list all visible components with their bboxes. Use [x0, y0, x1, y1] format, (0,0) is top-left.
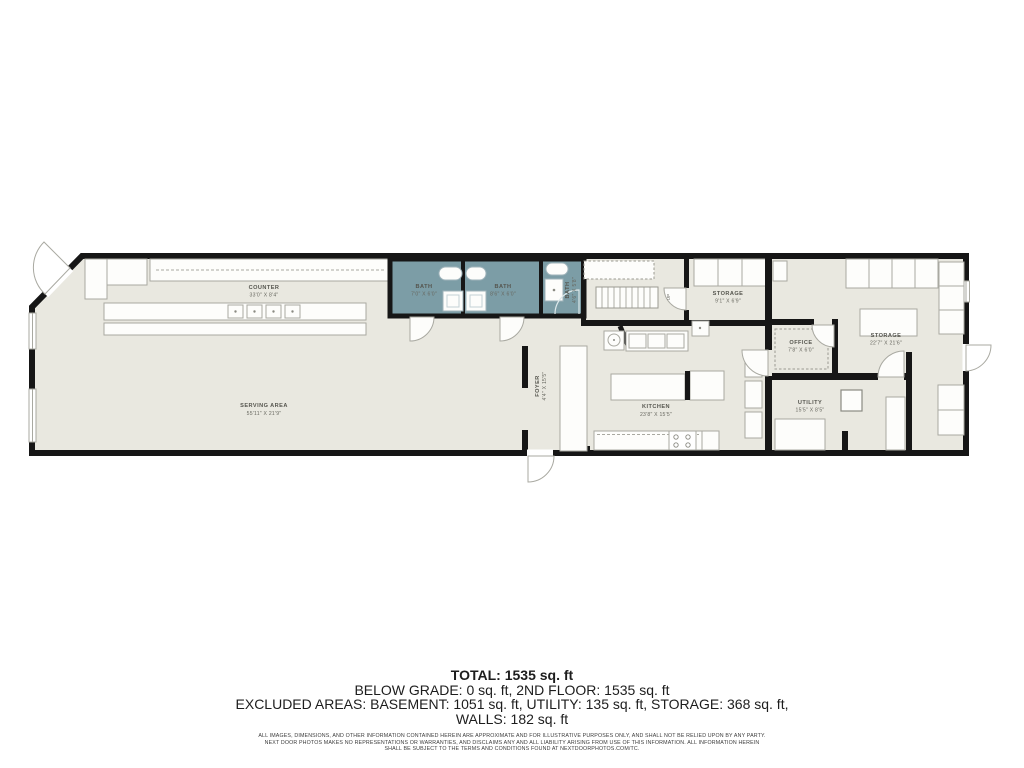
svg-text:KITCHEN: KITCHEN [642, 404, 670, 410]
excluded-areas-text: EXCLUDED AREAS: BASEMENT: 1051 sq. ft, U… [0, 697, 1024, 712]
below-grade-text: BELOW GRADE: 0 sq. ft, 2ND FLOOR: 1535 s… [0, 683, 1024, 698]
storage-table [860, 309, 917, 336]
storage-shelves [694, 259, 766, 286]
wall [583, 320, 769, 326]
svg-text:9'1" X 6'9": 9'1" X 6'9" [715, 299, 741, 305]
svg-text:BATH: BATH [565, 282, 571, 299]
island-counter [104, 303, 366, 335]
back-counter [150, 259, 390, 281]
svg-text:STORAGE: STORAGE [871, 333, 902, 339]
wall [684, 310, 689, 326]
kitchen-range-counter [594, 431, 719, 450]
room-label-utility: UTILITY 15'5" X 8'5" [796, 400, 825, 414]
svg-text:OFFICE: OFFICE [789, 340, 812, 346]
disclaimer-line: SHALL BE SUBJECT TO THE TERMS AND CONDIT… [0, 746, 1024, 753]
room-label-counter: COUNTER 33'0" X 8'4" [249, 285, 280, 299]
foyer-partition [560, 346, 587, 451]
svg-text:COUNTER: COUNTER [249, 285, 280, 291]
svg-text:55'11" X 21'9": 55'11" X 21'9" [247, 411, 282, 417]
total-area-text: TOTAL: 1535 sq. ft [0, 668, 1024, 683]
stairs-up-label: UP [666, 294, 671, 300]
room-label-foyer: FOYER 4'4" X 15'5" [535, 372, 548, 401]
wall [522, 346, 528, 388]
exterior-door [963, 344, 992, 371]
svg-text:7'8" X 6'0": 7'8" X 6'0" [788, 348, 814, 354]
svg-text:15'5" X 8'5": 15'5" X 8'5" [796, 408, 825, 414]
svg-text:SERVING AREA: SERVING AREA [240, 403, 288, 409]
svg-text:23'8" X 15'5": 23'8" X 15'5" [640, 412, 672, 418]
svg-text:BATH: BATH [495, 284, 512, 290]
svg-text:STORAGE: STORAGE [713, 291, 744, 297]
disclaimer-line: NEXT DOOR PHOTOS MAKES NO REPRESENTATION… [0, 740, 1024, 747]
svg-text:33'0" X 8'4": 33'0" X 8'4" [250, 293, 279, 299]
svg-text:4'6" X 5'8": 4'6" X 5'8" [572, 277, 578, 303]
wall [906, 352, 912, 453]
area-summary: TOTAL: 1535 sq. ft BELOW GRADE: 0 sq. ft… [0, 668, 1024, 753]
disclaimer-line: ALL IMAGES, DIMENSIONS, AND OTHER INFORM… [0, 733, 1024, 740]
wall [684, 256, 689, 288]
disclaimer: ALL IMAGES, DIMENSIONS, AND OTHER INFORM… [0, 733, 1024, 753]
wall [772, 319, 814, 325]
svg-text:8'6" X 6'0": 8'6" X 6'0" [490, 292, 516, 298]
walls-area-text: WALLS: 182 sq. ft [0, 712, 1024, 727]
kitchen-island [611, 371, 724, 400]
exterior-door [527, 450, 554, 483]
room-label-storage-small: STORAGE 9'1" X 6'9" [713, 291, 744, 305]
window [29, 313, 36, 349]
svg-text:UTILITY: UTILITY [798, 400, 822, 406]
floor-plan: UP [0, 0, 1024, 620]
svg-text:22'7" X 21'6": 22'7" X 21'6" [870, 341, 902, 347]
svg-text:7'0" X 6'0": 7'0" X 6'0" [411, 292, 437, 298]
svg-text:4'4" X 15'5": 4'4" X 15'5" [542, 372, 548, 401]
window [29, 389, 36, 442]
room-label-office: OFFICE 7'8" X 6'0" [788, 340, 814, 354]
room-label-storage-large: STORAGE 22'7" X 21'6" [870, 333, 902, 347]
svg-text:FOYER: FOYER [535, 375, 541, 397]
svg-text:BATH: BATH [416, 284, 433, 290]
